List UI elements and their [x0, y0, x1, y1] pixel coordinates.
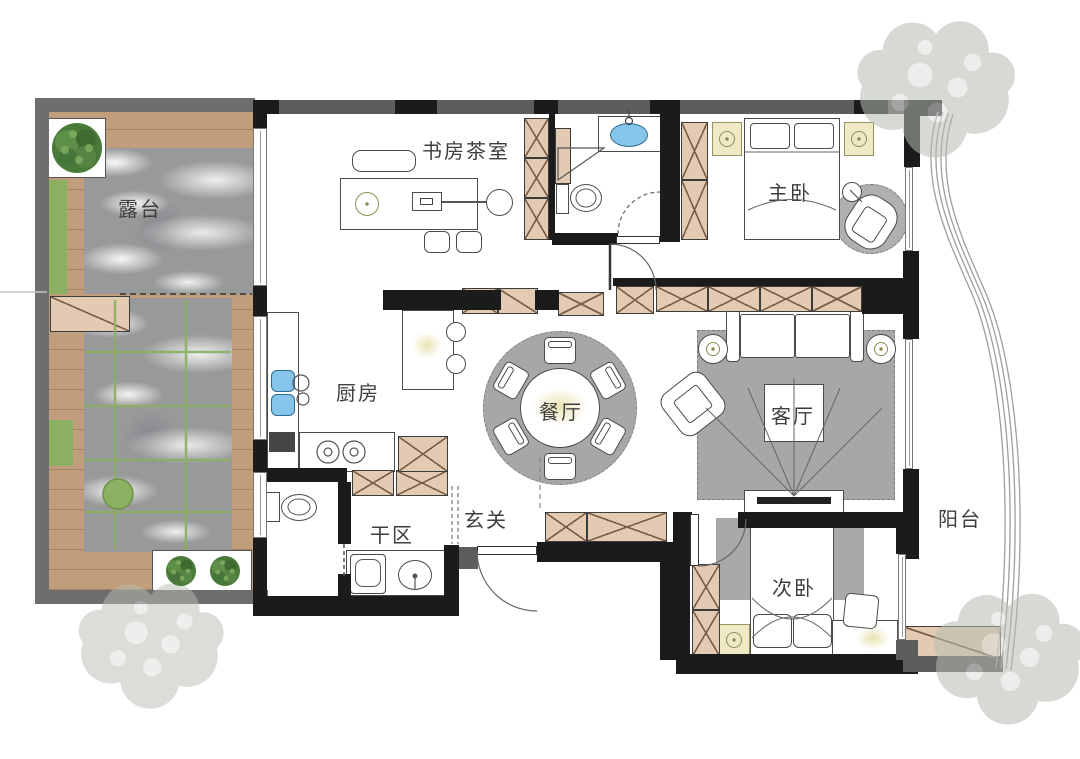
master-pillow-2 — [794, 123, 834, 149]
bath-toilet-bowl — [570, 184, 602, 212]
wall-balcony-south — [903, 656, 1003, 672]
dining-label: 餐厅 — [539, 396, 583, 425]
bar-stool-1 — [446, 322, 466, 342]
wall-foyer-stub — [459, 547, 478, 569]
terrace-stone-lower — [84, 298, 232, 552]
study-cabinet-1 — [524, 118, 549, 158]
wetbath-toilet-tank — [266, 492, 280, 522]
sofa-arm-left — [726, 304, 740, 362]
study-stool-2 — [456, 231, 482, 253]
wall-east-pier-1 — [904, 112, 920, 167]
plant-icon-left — [706, 342, 720, 356]
entry-door-leaf — [477, 546, 537, 555]
terrace-label: 露台 — [118, 193, 162, 222]
wall-foyer-south — [537, 542, 677, 562]
wall-top-pier-4 — [650, 100, 680, 114]
wall-west-pier-3 — [253, 538, 267, 600]
balcony-label: 阳台 — [938, 503, 982, 532]
wall-foyer-step — [444, 545, 459, 598]
wall-top-pier-5 — [854, 100, 888, 114]
wall-top — [253, 100, 942, 114]
wall-island-back — [383, 290, 501, 310]
terrace-green-patch — [49, 420, 73, 466]
floor-plan: 露台 书房茶室 主卧 — [0, 0, 1080, 759]
terrace-bench — [50, 296, 130, 332]
island-glow — [412, 332, 442, 358]
bedroom2-pillow-1 — [753, 614, 792, 648]
wall-bedroom2-west — [660, 542, 690, 660]
dining-chair-n — [544, 337, 576, 364]
bedroom2-door-leaf — [690, 514, 699, 566]
spine-cabinet-2 — [656, 286, 708, 312]
spine-cabinet-3 — [708, 286, 760, 312]
dry-cabinet-1 — [352, 470, 394, 496]
wall-study-bath — [549, 114, 555, 240]
bay-window-curves — [931, 112, 1020, 670]
window-bath-west — [253, 472, 267, 538]
spine-cabinet-7 — [498, 288, 538, 314]
wall-top-pier-2 — [395, 100, 437, 114]
dining-chair-s — [544, 453, 576, 480]
kitchen-sink-1 — [271, 370, 295, 392]
lamp-icon-right — [851, 131, 867, 147]
kitchen-label: 厨房 — [336, 377, 380, 406]
kitchen-oven — [269, 432, 295, 452]
kitchen-sink-2 — [271, 394, 295, 416]
window-study-west — [253, 128, 267, 286]
window-master-east — [905, 167, 913, 251]
study-label: 书房茶室 — [422, 135, 510, 164]
terrace-green-strip — [49, 180, 67, 294]
foyer-label: 玄关 — [464, 504, 508, 533]
wall-bedroom2-south — [676, 654, 918, 674]
entry-door-arc — [477, 551, 537, 611]
wall-top-pier-3 — [534, 100, 558, 114]
master-wardrobe-1 — [681, 122, 708, 180]
master-bedroom-label: 主卧 — [768, 177, 812, 206]
wall-south-west — [253, 596, 459, 616]
terrace-stone-upper — [84, 148, 253, 294]
living-label: 客厅 — [771, 400, 815, 429]
wetbath-toilet-bowl — [281, 494, 317, 521]
terrace-wall-left — [35, 98, 49, 604]
window-bedroom2-east — [898, 554, 906, 640]
study-round-stool — [486, 189, 513, 216]
terrace-wall-top — [35, 98, 255, 112]
wall-bath-south — [552, 233, 618, 245]
second-bedroom-label: 次卧 — [772, 572, 816, 601]
bath-toilet-tank — [556, 184, 569, 214]
window-living-east — [905, 339, 913, 469]
study-stool-1 — [424, 231, 450, 253]
shoe-cabinet-2 — [587, 512, 667, 542]
tea-table-rail — [442, 201, 488, 203]
study-cabinet-2 — [524, 158, 549, 198]
faded-tree-top-right — [858, 21, 1016, 157]
study-cabinet-3 — [524, 198, 549, 240]
dry-cabinet-2 — [396, 470, 448, 496]
window-kitchen-west — [253, 316, 267, 440]
dry-area-open-boundary — [452, 486, 458, 544]
wall-spine-pier-east — [862, 282, 906, 314]
bedroom2-plant-icon — [726, 632, 742, 648]
bar-stool-2 — [446, 354, 466, 374]
shoe-cabinet-1 — [545, 512, 587, 542]
master-wardrobe-2 — [681, 180, 708, 240]
bath-sink — [610, 123, 648, 147]
sofa-cushion-2 — [795, 314, 850, 358]
wall-spine-stub — [535, 290, 559, 310]
bath-door-leaf — [616, 236, 660, 244]
bedroom2-wardrobe-2 — [692, 610, 720, 656]
bedroom2-wardrobe-1 — [692, 564, 720, 610]
bedroom2-desk-glow — [856, 626, 890, 650]
lamp-icon-left — [719, 131, 735, 147]
sofa-cushion-1 — [740, 314, 795, 358]
spine-cabinet-4 — [760, 286, 812, 312]
spine-cabinet-6 — [558, 292, 604, 316]
washer-drum — [355, 559, 381, 587]
bedroom2-chair — [842, 592, 879, 629]
bath-shelf — [555, 128, 571, 184]
wall-wetbath-north — [253, 468, 347, 482]
wall-west-pier-0 — [253, 112, 267, 128]
master-pillow-1 — [750, 123, 790, 149]
dry-area-basin — [398, 560, 432, 590]
terrace-tree-planter-box — [48, 118, 106, 178]
plant-icon-right — [874, 342, 888, 356]
study-bench — [352, 150, 416, 172]
wall-bedroom2-ne-pier — [896, 512, 918, 554]
wall-bath-east — [660, 114, 680, 242]
terrace-planter — [152, 550, 252, 592]
bath-door-arc — [618, 192, 660, 234]
wall-west-pier-1 — [253, 286, 267, 316]
tea-table-plant-icon — [355, 192, 379, 216]
dry-area-label: 干区 — [370, 519, 414, 548]
spine-cabinet-5 — [812, 286, 862, 312]
bedroom2-pillow-2 — [793, 614, 832, 648]
dry-cabinet-3 — [398, 436, 448, 472]
tv-screen — [757, 497, 831, 504]
terrace-wall-bottom — [35, 590, 268, 604]
teapot-icon — [420, 198, 433, 205]
wall-wetbath-divider-1 — [338, 482, 351, 544]
wall-bedroom2-north — [738, 512, 898, 528]
kitchen-counter-south — [299, 432, 395, 472]
spine-cabinet-1 — [616, 286, 654, 314]
